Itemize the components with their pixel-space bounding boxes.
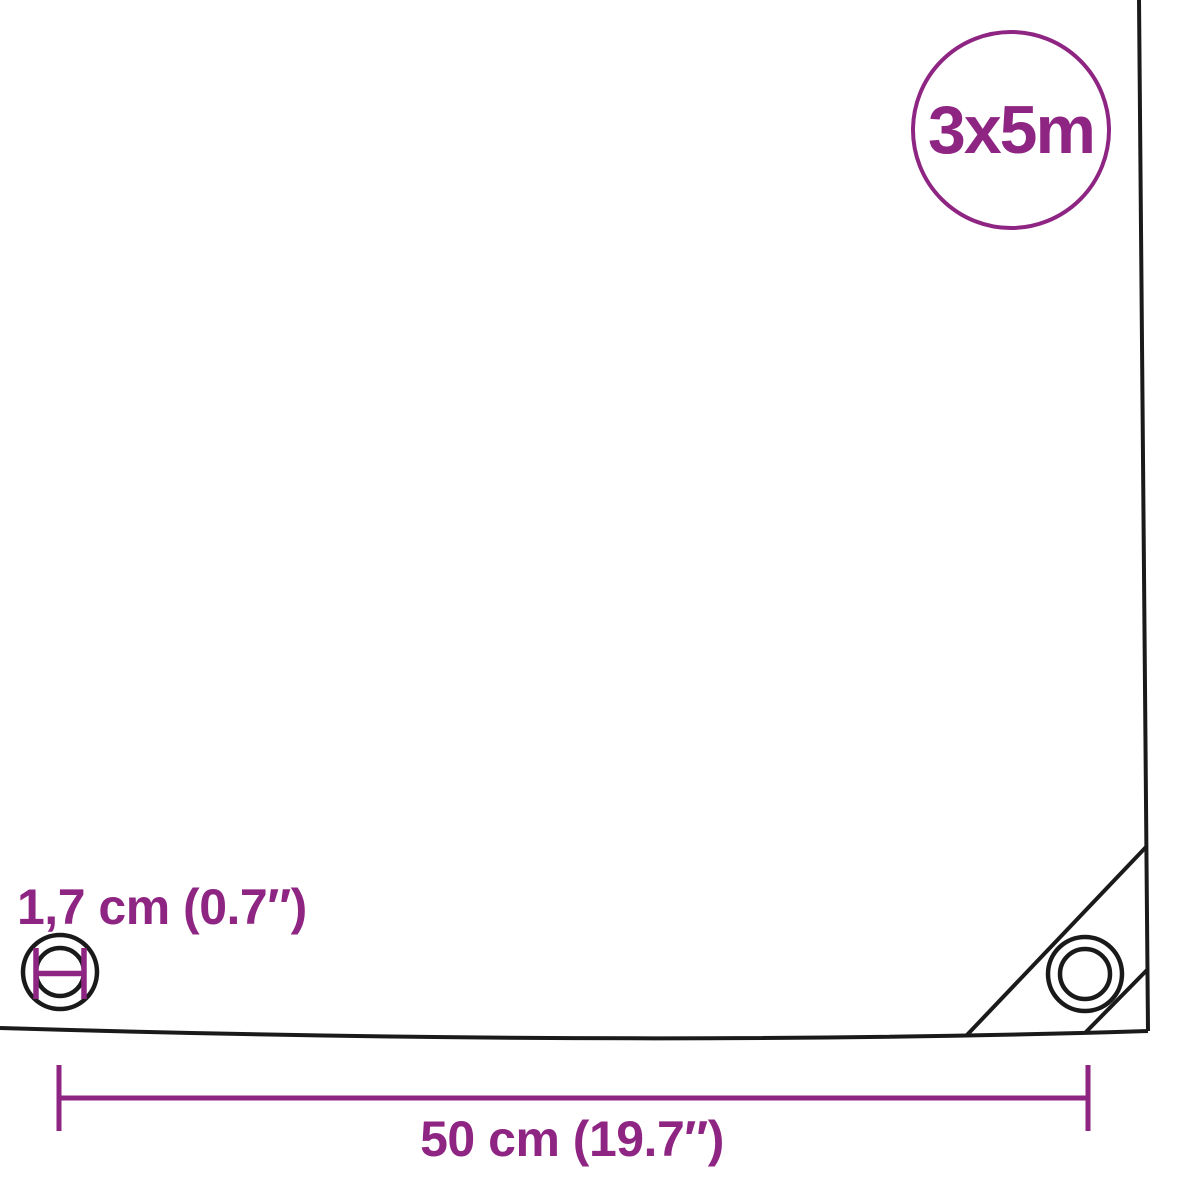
corner-fold-line — [966, 847, 1146, 1036]
spacing-dimension: 50 cm (19.7″) — [59, 1065, 1088, 1167]
corner-grommet-icon — [1048, 937, 1122, 1011]
tarp-right-edge — [1139, 0, 1148, 1031]
eyelet-diameter-icon — [23, 935, 97, 1009]
spacing-label: 50 cm (19.7″) — [420, 1111, 724, 1167]
tarp-bottom-edge — [0, 1028, 1148, 1038]
eyelet-diameter-label: 1,7 cm (0.7″) — [17, 879, 307, 935]
size-badge-label: 3x5m — [928, 92, 1094, 168]
tarpaulin-dimension-diagram: 1,7 cm (0.7″) 3x5m 50 cm (19.7″) — [0, 0, 1200, 1200]
size-badge: 3x5m — [913, 32, 1109, 228]
diagram-canvas: 1,7 cm (0.7″) 3x5m 50 cm (19.7″) — [0, 0, 1200, 1200]
